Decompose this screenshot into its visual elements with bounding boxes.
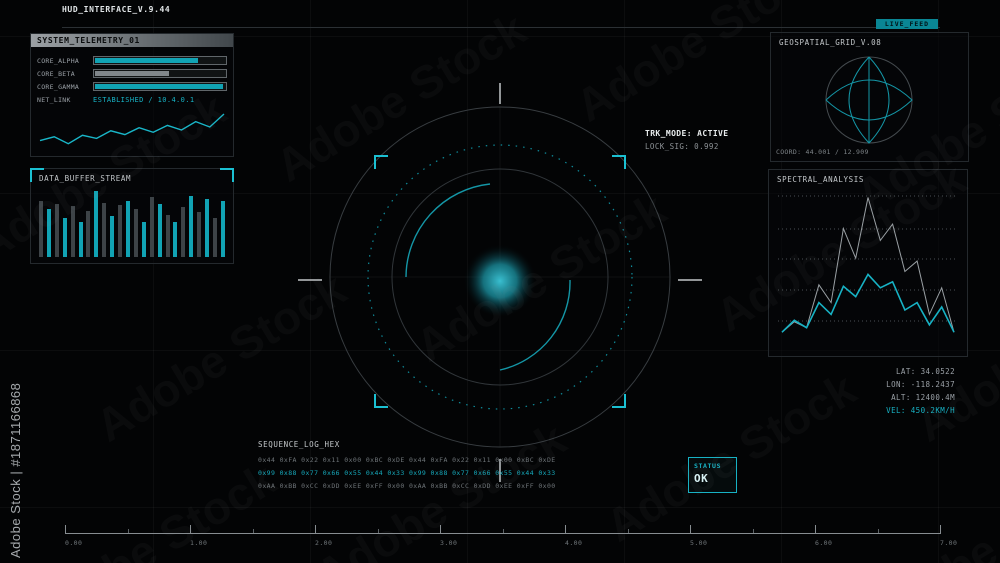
buffer-bar — [47, 209, 51, 257]
buffer-bar — [94, 191, 98, 257]
nav-data: LAT: 34.0522LON: -118.2437ALT: 12400.4MV… — [800, 365, 955, 417]
timeline-major-tick — [65, 525, 66, 533]
buffer-bar — [110, 216, 114, 257]
buffer-bar — [197, 212, 201, 257]
buffer-bar — [63, 218, 67, 257]
nav-row: LAT: 34.0522 — [800, 365, 955, 378]
sequence-log-title: SEQUENCE_LOG_HEX — [258, 440, 556, 449]
buffer-bar — [205, 199, 209, 257]
reticle-bracket-icon — [375, 156, 388, 169]
spectral-series-secondary — [782, 274, 954, 332]
buffer-bar — [86, 211, 90, 257]
geospatial-panel: GEOSPATIAL_GRID_V.08 COORD: 44.001 / 12.… — [770, 32, 969, 162]
data-buffer-title: DATA_BUFFER_STREAM — [39, 174, 131, 183]
telemetry-row-label: CORE_BETA — [37, 70, 93, 78]
buffer-bar — [181, 207, 185, 257]
telemetry-row: CORE_BETA — [37, 67, 227, 80]
timeline-tick-label: 4.00 — [565, 539, 582, 547]
telemetry-progress-fill — [95, 84, 223, 89]
radar-target-glow — [463, 244, 537, 318]
system-telemetry-panel: SYSTEM_TELEMETRY_01 CORE_ALPHACORE_BETAC… — [30, 33, 234, 157]
hex-row: 0x44 0xFA 0x22 0x11 0x00 0xBC 0xDE 0x44 … — [258, 454, 556, 467]
timeline-minor-tick — [128, 529, 129, 533]
spectral-title: SPECTRAL_ANALYSIS — [777, 175, 864, 184]
net-link-row-wrap: NET_LINK ESTABLISHED / 10.4.0.1 — [37, 93, 227, 106]
sequence-log-panel: SEQUENCE_LOG_HEX 0x44 0xFA 0x22 0x11 0x0… — [258, 440, 556, 493]
telemetry-panel-header: SYSTEM_TELEMETRY_01 — [31, 34, 233, 47]
buffer-bar — [142, 222, 146, 257]
telemetry-progress-track — [93, 82, 227, 91]
timeline-major-tick — [940, 525, 941, 533]
timeline-axis-line — [65, 533, 941, 534]
buffer-bar — [173, 222, 177, 257]
buffer-bars — [39, 189, 225, 257]
buffer-bar — [79, 222, 83, 257]
data-buffer-panel: DATA_BUFFER_STREAM — [30, 168, 234, 264]
telemetry-progress-fill — [95, 58, 198, 63]
timeline-minor-tick — [378, 529, 379, 533]
hex-row: 0x99 0x88 0x77 0x66 0x55 0x44 0x33 0x99 … — [258, 467, 556, 480]
timeline-major-tick — [440, 525, 441, 533]
net-link-label: NET_LINK — [37, 96, 93, 104]
status-value: OK — [694, 472, 736, 485]
timeline-ruler: 0.001.002.003.004.005.006.007.00 — [0, 525, 1000, 563]
buffer-bar — [39, 201, 43, 257]
buffer-bar — [213, 218, 217, 257]
trk-mode-text: TRK_MODE: ACTIVE — [645, 127, 728, 140]
telemetry-row-label: CORE_ALPHA — [37, 57, 93, 65]
timeline-tick-label: 2.00 — [315, 539, 332, 547]
timeline-minor-tick — [628, 529, 629, 533]
reticle-bracket-icon — [375, 394, 388, 407]
radar-reticle — [270, 50, 730, 495]
hex-row: 0xAA 0xBB 0xCC 0xDD 0xEE 0xFF 0x00 0xAA … — [258, 480, 556, 493]
timeline-major-tick — [565, 525, 566, 533]
reticle-bracket-icon — [612, 156, 625, 169]
nav-row: VEL: 450.2KM/H — [800, 404, 955, 417]
sequence-log-rows: 0x44 0xFA 0x22 0x11 0x00 0xBC 0xDE 0x44 … — [258, 454, 556, 493]
corner-bracket-icon — [220, 168, 234, 182]
header-divider — [62, 27, 940, 28]
net-link-row: NET_LINK ESTABLISHED / 10.4.0.1 — [37, 93, 227, 106]
timeline-major-tick — [315, 525, 316, 533]
nav-row: ALT: 12400.4M — [800, 391, 955, 404]
spectral-series-primary — [782, 198, 954, 333]
timeline-tick-label: 6.00 — [815, 539, 832, 547]
net-link-sparkline — [37, 108, 227, 152]
status-label: STATUS — [694, 462, 736, 470]
buffer-bar — [166, 215, 170, 257]
buffer-bar — [221, 201, 225, 257]
net-link-sparkline-line — [40, 114, 224, 144]
spectral-panel: SPECTRAL_ANALYSIS — [768, 169, 968, 357]
timeline-major-tick — [190, 525, 191, 533]
geospatial-title: GEOSPATIAL_GRID_V.08 — [779, 38, 881, 47]
timeline-minor-tick — [878, 529, 879, 533]
geospatial-coords: COORD: 44.001 / 12.909 — [776, 148, 869, 156]
telemetry-progress-fill — [95, 71, 169, 76]
timeline-major-tick — [815, 525, 816, 533]
page-title: HUD_INTERFACE_V.9.44 — [62, 5, 170, 14]
buffer-bar — [134, 209, 138, 257]
lock-sig-text: LOCK_SIG: 0.992 — [645, 140, 728, 153]
buffer-bar — [189, 196, 193, 257]
telemetry-row: CORE_ALPHA — [37, 54, 227, 67]
buffer-bar — [71, 206, 75, 257]
live-feed-badge[interactable]: LIVE_FEED — [876, 19, 938, 29]
spectral-plot — [776, 190, 960, 350]
telemetry-core-rows: CORE_ALPHACORE_BETACORE_GAMMA — [37, 54, 227, 93]
timeline-minor-tick — [503, 529, 504, 533]
buffer-bar — [126, 201, 130, 257]
timeline-tick-label: 5.00 — [690, 539, 707, 547]
timeline-tick-label: 1.00 — [190, 539, 207, 547]
timeline-major-tick — [690, 525, 691, 533]
buffer-bar — [158, 204, 162, 257]
reticle-bracket-icon — [612, 394, 625, 407]
telemetry-progress-track — [93, 69, 227, 78]
buffer-bar — [102, 203, 106, 257]
timeline-tick-label: 0.00 — [65, 539, 82, 547]
net-link-value: ESTABLISHED / 10.4.0.1 — [93, 96, 195, 104]
telemetry-progress-track — [93, 56, 227, 65]
timeline-minor-tick — [753, 529, 754, 533]
buffer-bar — [118, 205, 122, 257]
geospatial-globe — [771, 54, 968, 146]
hud-root: HUD_INTERFACE_V.9.44 LIVE_FEED SYSTEM_TE… — [0, 0, 1000, 563]
status-box[interactable]: STATUS OK — [688, 457, 737, 493]
timeline-tick-label: 3.00 — [440, 539, 457, 547]
telemetry-row-label: CORE_GAMMA — [37, 83, 93, 91]
timeline-minor-tick — [253, 529, 254, 533]
timeline-tick-label: 7.00 — [940, 539, 957, 547]
buffer-bar — [150, 197, 154, 257]
nav-row: LON: -118.2437 — [800, 378, 955, 391]
buffer-bar — [55, 204, 59, 257]
tracking-readout: TRK_MODE: ACTIVE LOCK_SIG: 0.992 — [645, 127, 728, 153]
telemetry-row: CORE_GAMMA — [37, 80, 227, 93]
